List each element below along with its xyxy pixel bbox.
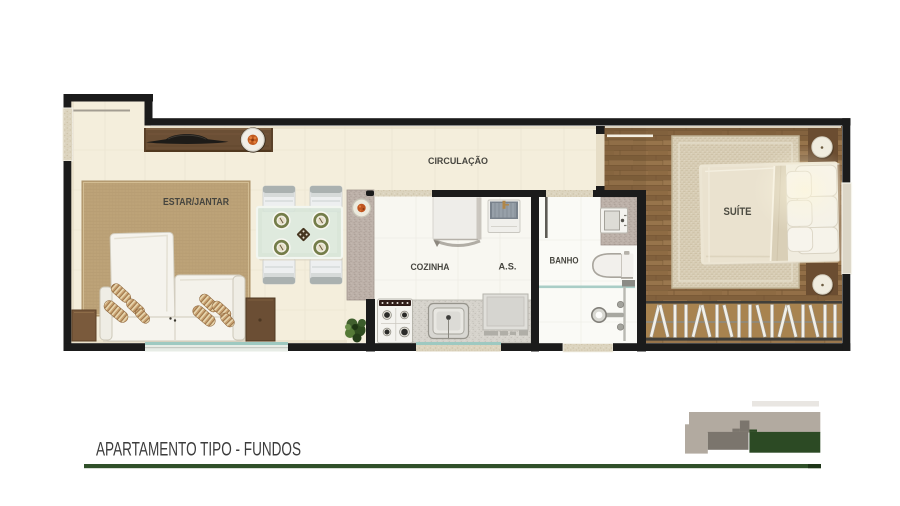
svg-text:BANHO: BANHO [550, 256, 579, 266]
svg-text:COZINHA: COZINHA [411, 262, 450, 273]
svg-text:SUÍTE: SUÍTE [724, 205, 752, 218]
svg-text:CIRCULAÇÃO: CIRCULAÇÃO [428, 156, 488, 166]
svg-text:APARTAMENTO TIPO - FUNDOS: APARTAMENTO TIPO - FUNDOS [96, 440, 301, 461]
svg-text:A.S.: A.S. [499, 262, 517, 273]
svg-text:ESTAR/JANTAR: ESTAR/JANTAR [163, 197, 229, 208]
